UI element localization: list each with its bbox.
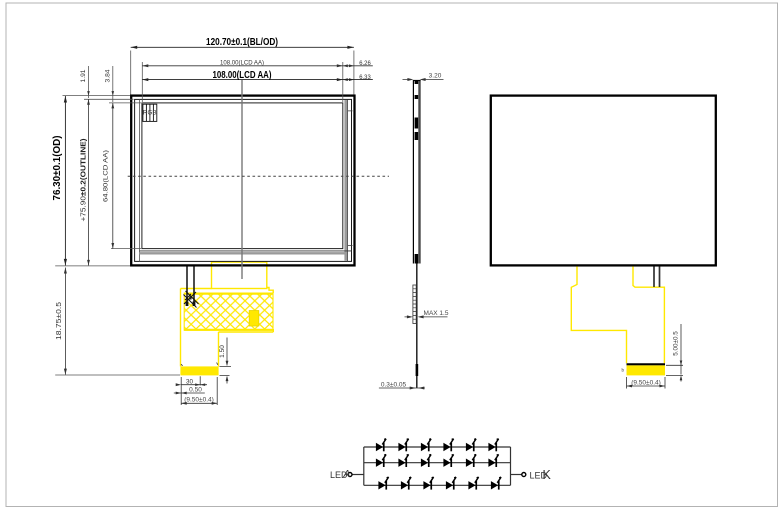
svg-text:K: K (543, 468, 552, 482)
svg-text:6.33: 6.33 (359, 75, 371, 81)
svg-text:(9.50±0.4): (9.50±0.4) (631, 379, 661, 386)
svg-text:18.75±0.5: 18.75±0.5 (56, 302, 63, 340)
svg-text:3.20: 3.20 (429, 73, 442, 80)
svg-text:120.70±0.1(BL/OD): 120.70±0.1(BL/OD) (206, 37, 278, 48)
svg-text:A: A (343, 469, 351, 480)
svg-text:30: 30 (186, 379, 194, 385)
svg-text:108.00(LCD AA): 108.00(LCD AA) (220, 60, 264, 66)
svg-text:76.30±0.1(OD): 76.30±0.1(OD) (52, 136, 63, 201)
svg-text:(9.50±0.4): (9.50±0.4) (184, 397, 214, 404)
svg-text:0.3±0.05: 0.3±0.05 (381, 382, 407, 389)
svg-text:MAX 1.5: MAX 1.5 (424, 310, 449, 317)
svg-text:64.80(LCD AA): 64.80(LCD AA) (103, 150, 110, 202)
svg-text:5.00±0.5: 5.00±0.5 (673, 331, 680, 356)
svg-text:0.50: 0.50 (189, 387, 202, 394)
svg-text:6.26: 6.26 (359, 61, 371, 67)
svg-text:b: b (622, 368, 625, 373)
svg-text:1.91: 1.91 (81, 69, 87, 83)
svg-text:3.84: 3.84 (106, 69, 112, 83)
svg-text:RGB: RGB (143, 110, 157, 117)
svg-text:+75.90±0.2(OUTLINE): +75.90±0.2(OUTLINE) (81, 139, 88, 222)
svg-text:1.50: 1.50 (219, 345, 226, 358)
svg-text:108.00(LCD AA): 108.00(LCD AA) (213, 70, 272, 81)
